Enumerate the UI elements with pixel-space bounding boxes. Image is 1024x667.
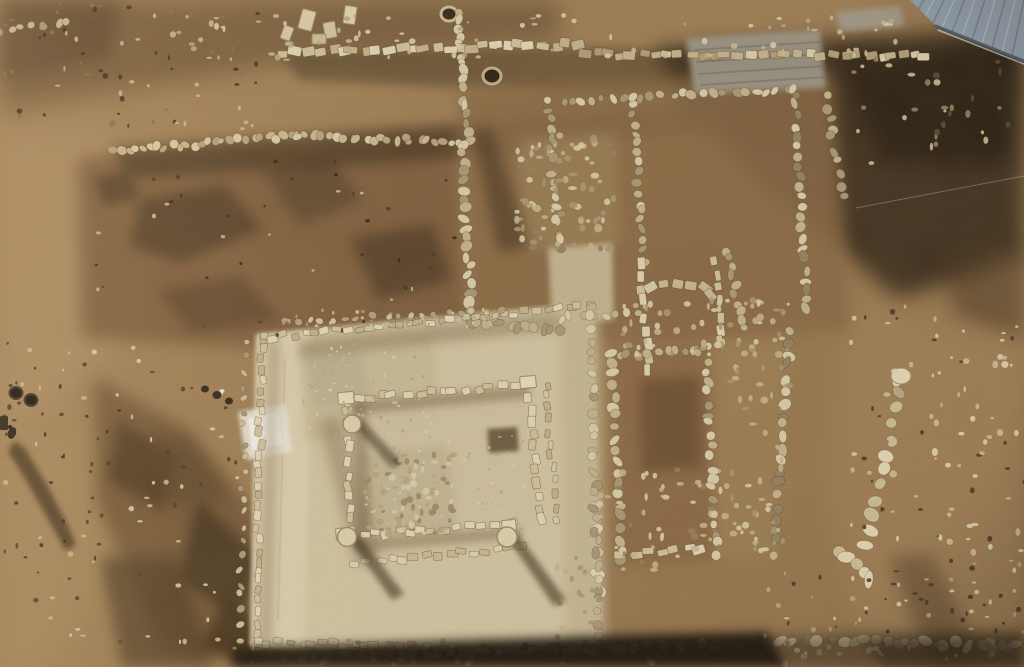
aerial-photo-canvas bbox=[0, 0, 1024, 667]
excavation-aerial-photo bbox=[0, 0, 1024, 667]
vignette-overlay bbox=[0, 0, 1024, 667]
